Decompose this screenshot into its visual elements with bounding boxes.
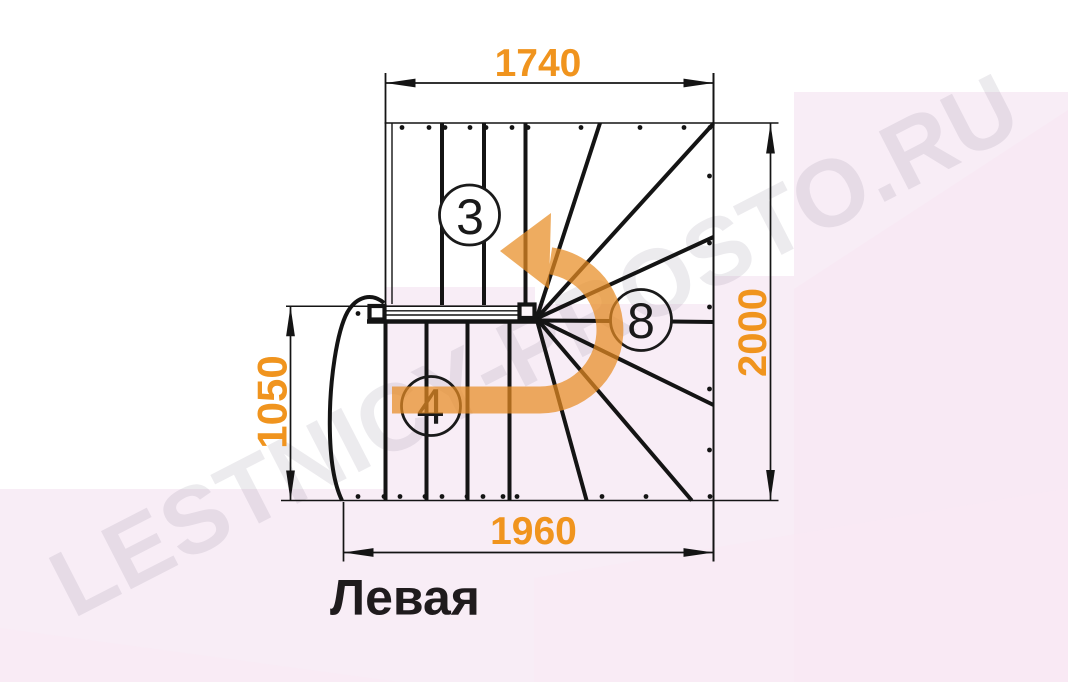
svg-text:Левая: Левая — [330, 570, 480, 626]
svg-text:1960: 1960 — [490, 510, 577, 553]
svg-text:2000: 2000 — [731, 288, 775, 377]
svg-text:8: 8 — [627, 293, 655, 349]
svg-text:3: 3 — [456, 189, 484, 245]
svg-text:1740: 1740 — [495, 42, 582, 85]
svg-text:1050: 1050 — [249, 355, 296, 448]
